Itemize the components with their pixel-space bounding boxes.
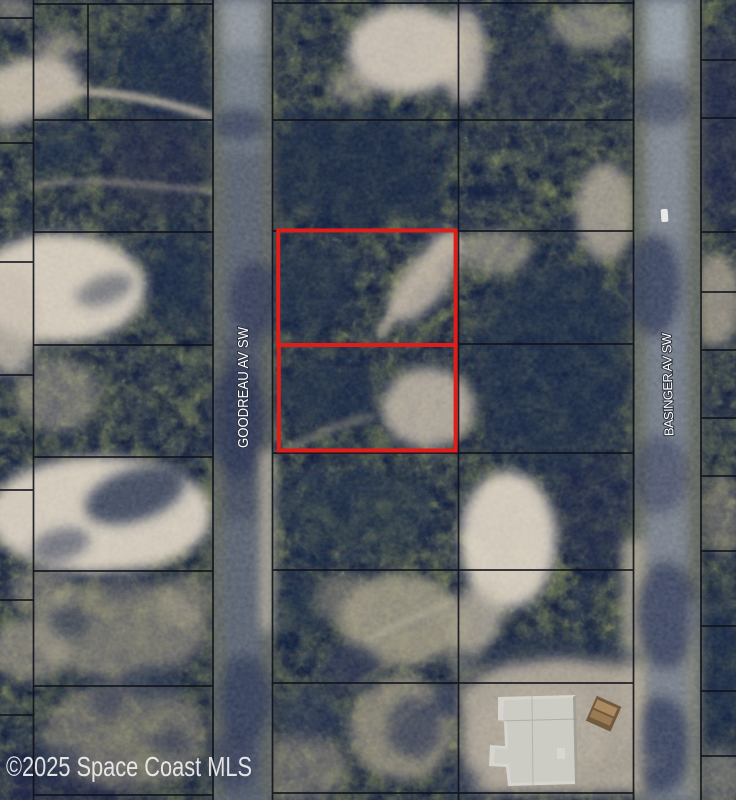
svg-text:GOODREAU AV SW: GOODREAU AV SW [236, 327, 252, 448]
svg-text:BASINGER AV SW: BASINGER AV SW [659, 332, 677, 436]
svg-text:©2025 Space Coast MLS: ©2025 Space Coast MLS [6, 751, 252, 782]
